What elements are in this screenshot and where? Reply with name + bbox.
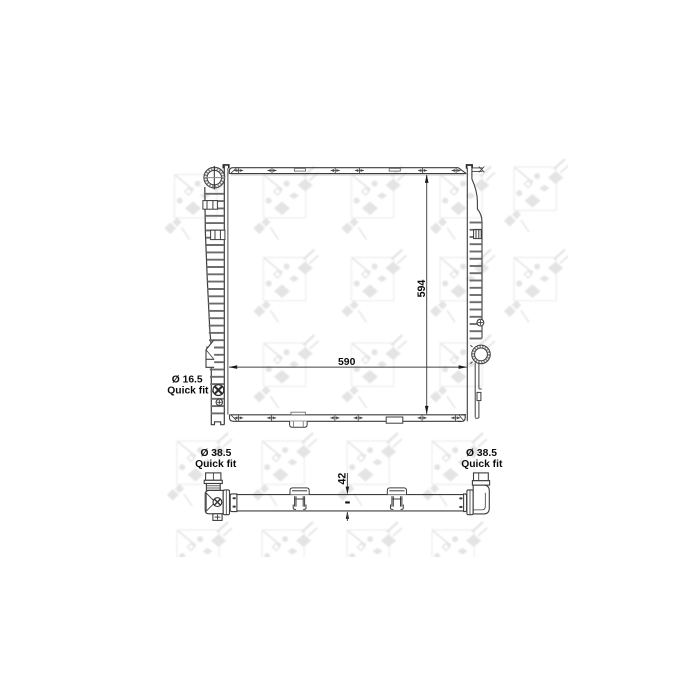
- svg-text:42: 42: [337, 473, 349, 485]
- svg-text:594: 594: [416, 280, 428, 298]
- svg-text:Ø 38.5: Ø 38.5: [466, 448, 497, 459]
- svg-text:Quick fit: Quick fit: [461, 459, 503, 470]
- svg-text:Quick fit: Quick fit: [167, 386, 209, 397]
- svg-text:Ø 16.5: Ø 16.5: [172, 374, 203, 385]
- svg-text:590: 590: [338, 357, 356, 368]
- svg-text:Ø 38.5: Ø 38.5: [200, 448, 231, 459]
- svg-text:Quick fit: Quick fit: [195, 459, 237, 470]
